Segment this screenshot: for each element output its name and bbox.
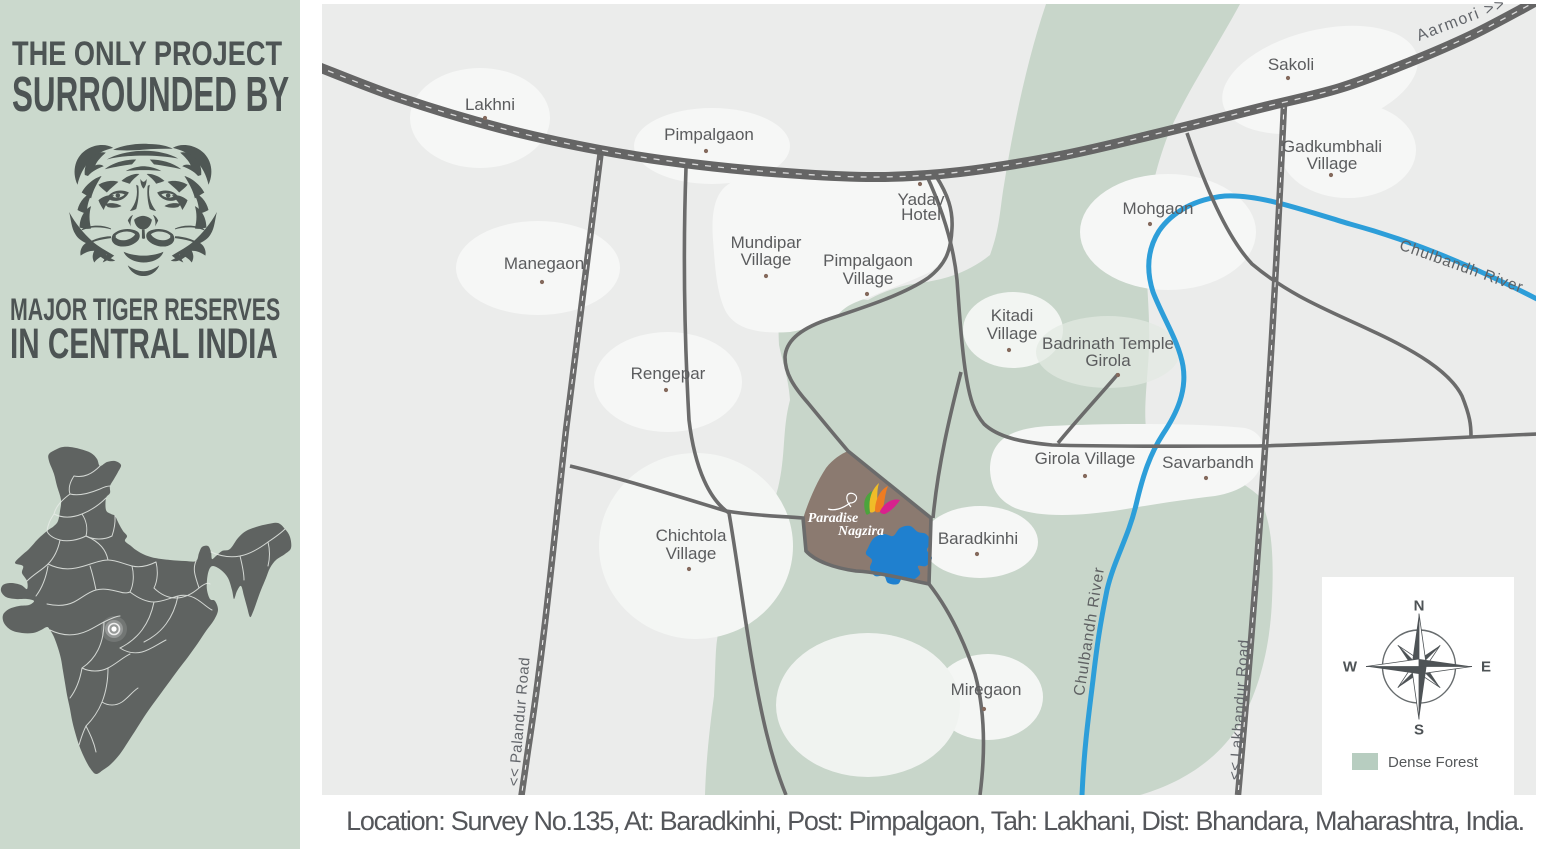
- svg-text:Village: Village: [987, 324, 1038, 343]
- svg-text:Nagzira: Nagzira: [837, 524, 884, 539]
- svg-text:Pimpalgaon: Pimpalgaon: [823, 251, 913, 270]
- svg-text:Village: Village: [843, 269, 894, 288]
- svg-text:Mohgaon: Mohgaon: [1123, 199, 1194, 218]
- svg-text:Pimpalgaon: Pimpalgaon: [664, 125, 754, 144]
- svg-text:Village: Village: [1307, 154, 1358, 173]
- svg-text:Village: Village: [741, 250, 792, 269]
- svg-text:Sakoli: Sakoli: [1268, 55, 1314, 74]
- svg-text:Chichtola: Chichtola: [656, 526, 727, 545]
- svg-text:Dense Forest: Dense Forest: [1388, 754, 1479, 771]
- svg-text:Girola: Girola: [1085, 351, 1131, 370]
- svg-text:E: E: [1481, 659, 1491, 676]
- svg-text:N: N: [1414, 598, 1425, 615]
- svg-text:Baradkinhi: Baradkinhi: [938, 529, 1018, 548]
- svg-text:S: S: [1414, 722, 1424, 739]
- svg-text:W: W: [1343, 659, 1358, 676]
- svg-text:Savarbandh: Savarbandh: [1162, 453, 1254, 472]
- svg-text:Rengepar: Rengepar: [631, 364, 706, 383]
- svg-text:Hotel: Hotel: [901, 205, 941, 224]
- svg-text:Manegaon: Manegaon: [504, 254, 584, 273]
- svg-text:Lakhni: Lakhni: [465, 95, 515, 114]
- svg-text:Kitadi: Kitadi: [991, 306, 1034, 325]
- svg-text:Girola Village: Girola Village: [1035, 449, 1136, 468]
- svg-text:Village: Village: [666, 544, 717, 563]
- svg-text:Miregaon: Miregaon: [951, 680, 1022, 699]
